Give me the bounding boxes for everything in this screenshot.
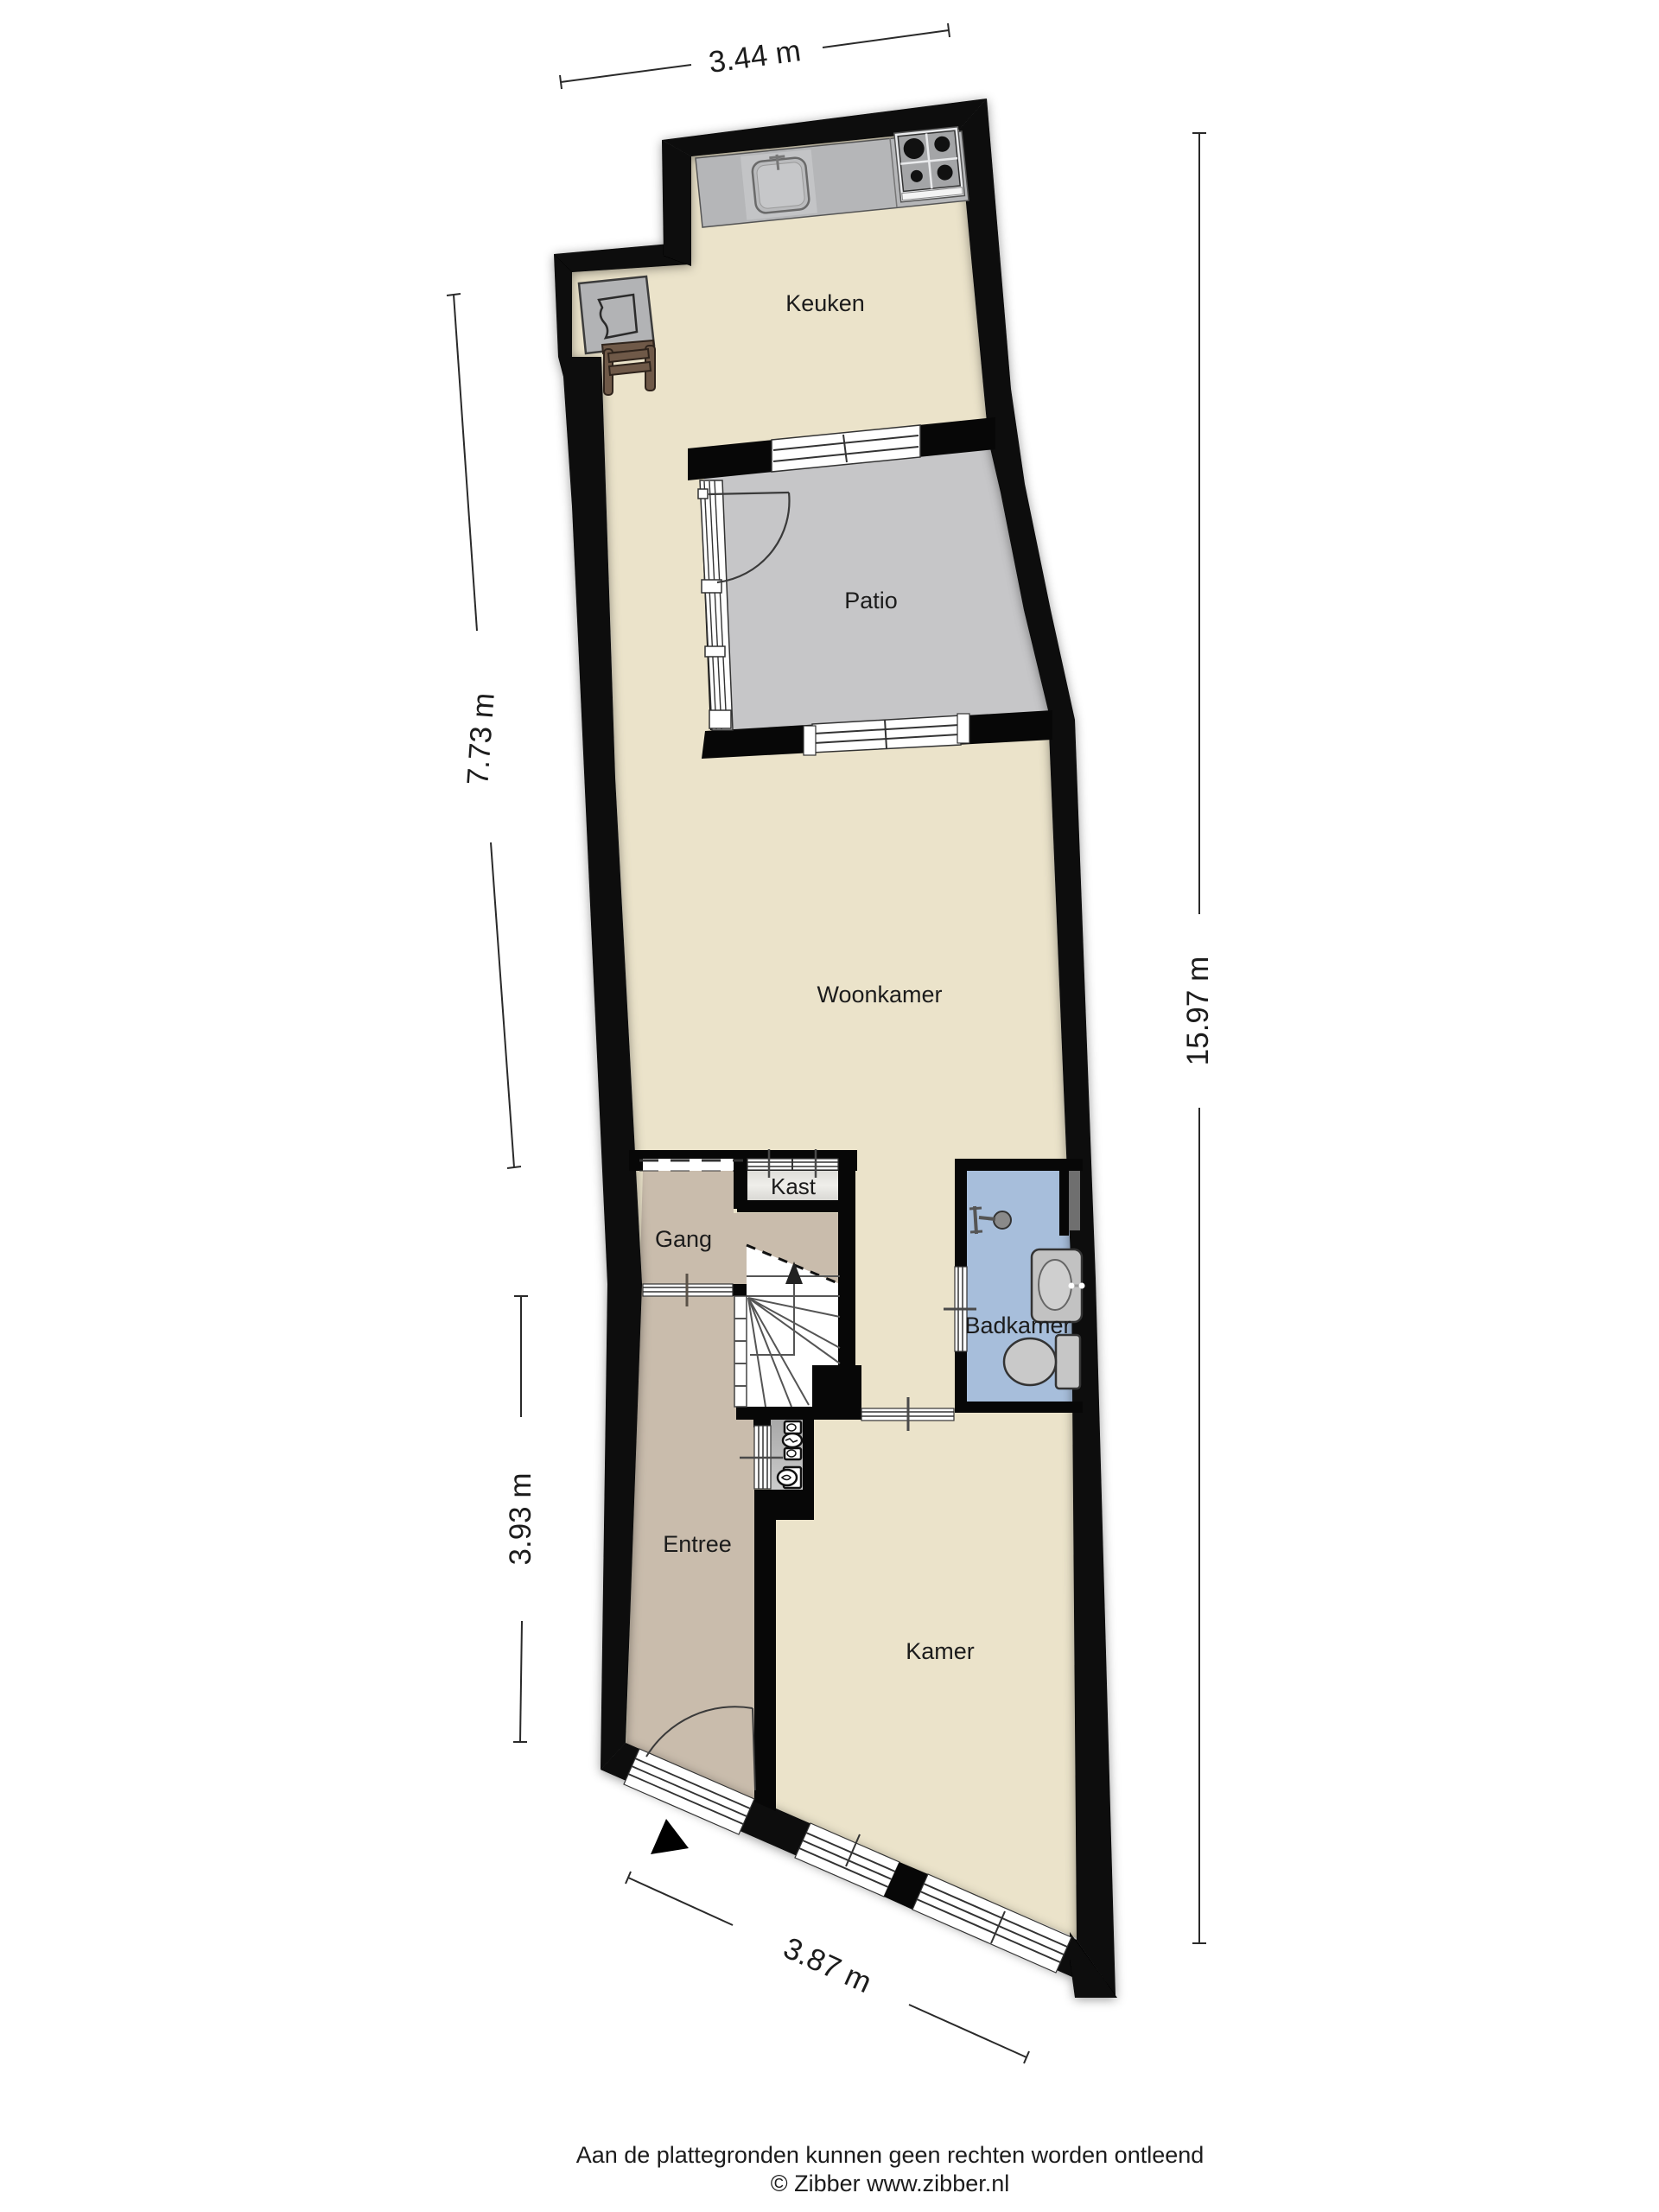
- svg-text:Kast: Kast: [771, 1173, 817, 1199]
- svg-text:Keuken: Keuken: [785, 290, 865, 316]
- svg-text:Aan de plattegronden kunnen ge: Aan de plattegronden kunnen geen rechten…: [576, 2142, 1205, 2168]
- svg-text:Gang: Gang: [655, 1226, 712, 1252]
- svg-text:Kamer: Kamer: [906, 1638, 975, 1664]
- svg-text:15.97 m: 15.97 m: [1181, 957, 1215, 1065]
- svg-text:Entree: Entree: [663, 1531, 732, 1557]
- svg-text:7.73 m: 7.73 m: [461, 691, 500, 785]
- svg-text:3.93 m: 3.93 m: [504, 1473, 537, 1566]
- svg-text:Woonkamer: Woonkamer: [817, 982, 942, 1007]
- svg-text:Patio: Patio: [844, 588, 898, 613]
- svg-text:3.87 m: 3.87 m: [779, 1931, 877, 2000]
- svg-text:Badkamer: Badkamer: [964, 1313, 1071, 1338]
- svg-text:3.44 m: 3.44 m: [707, 34, 803, 79]
- svg-text:© Zibber www.zibber.nl: © Zibber www.zibber.nl: [771, 2171, 1010, 2196]
